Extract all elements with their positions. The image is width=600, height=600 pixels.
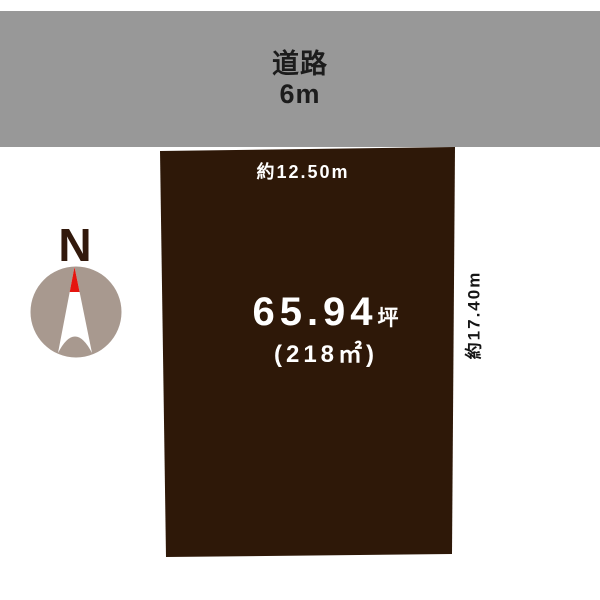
- depth-dimension-label: 約17.40m: [460, 271, 485, 360]
- land-plot-diagram: 道路 6m 約12.50m 65.94坪 (218㎡) 約17.40m N: [0, 0, 600, 600]
- area-sqm-label: (218㎡): [252, 343, 399, 367]
- road-label: 道路: [272, 49, 328, 79]
- frontage-dimension-label: 約12.50m: [256, 158, 349, 184]
- area-tsubo-line: 65.94坪: [252, 292, 399, 339]
- compass-rose-icon: [30, 266, 122, 358]
- road-text-block: 道路 6m: [272, 49, 328, 109]
- area-tsubo-unit: 坪: [378, 307, 400, 330]
- compass-north-label: N: [58, 222, 91, 268]
- road-strip: 道路 6m: [0, 11, 600, 147]
- road-width-label: 6m: [272, 79, 328, 109]
- area-tsubo-value: 65.94: [252, 290, 377, 334]
- area-label-block: 65.94坪 (218㎡): [252, 292, 399, 367]
